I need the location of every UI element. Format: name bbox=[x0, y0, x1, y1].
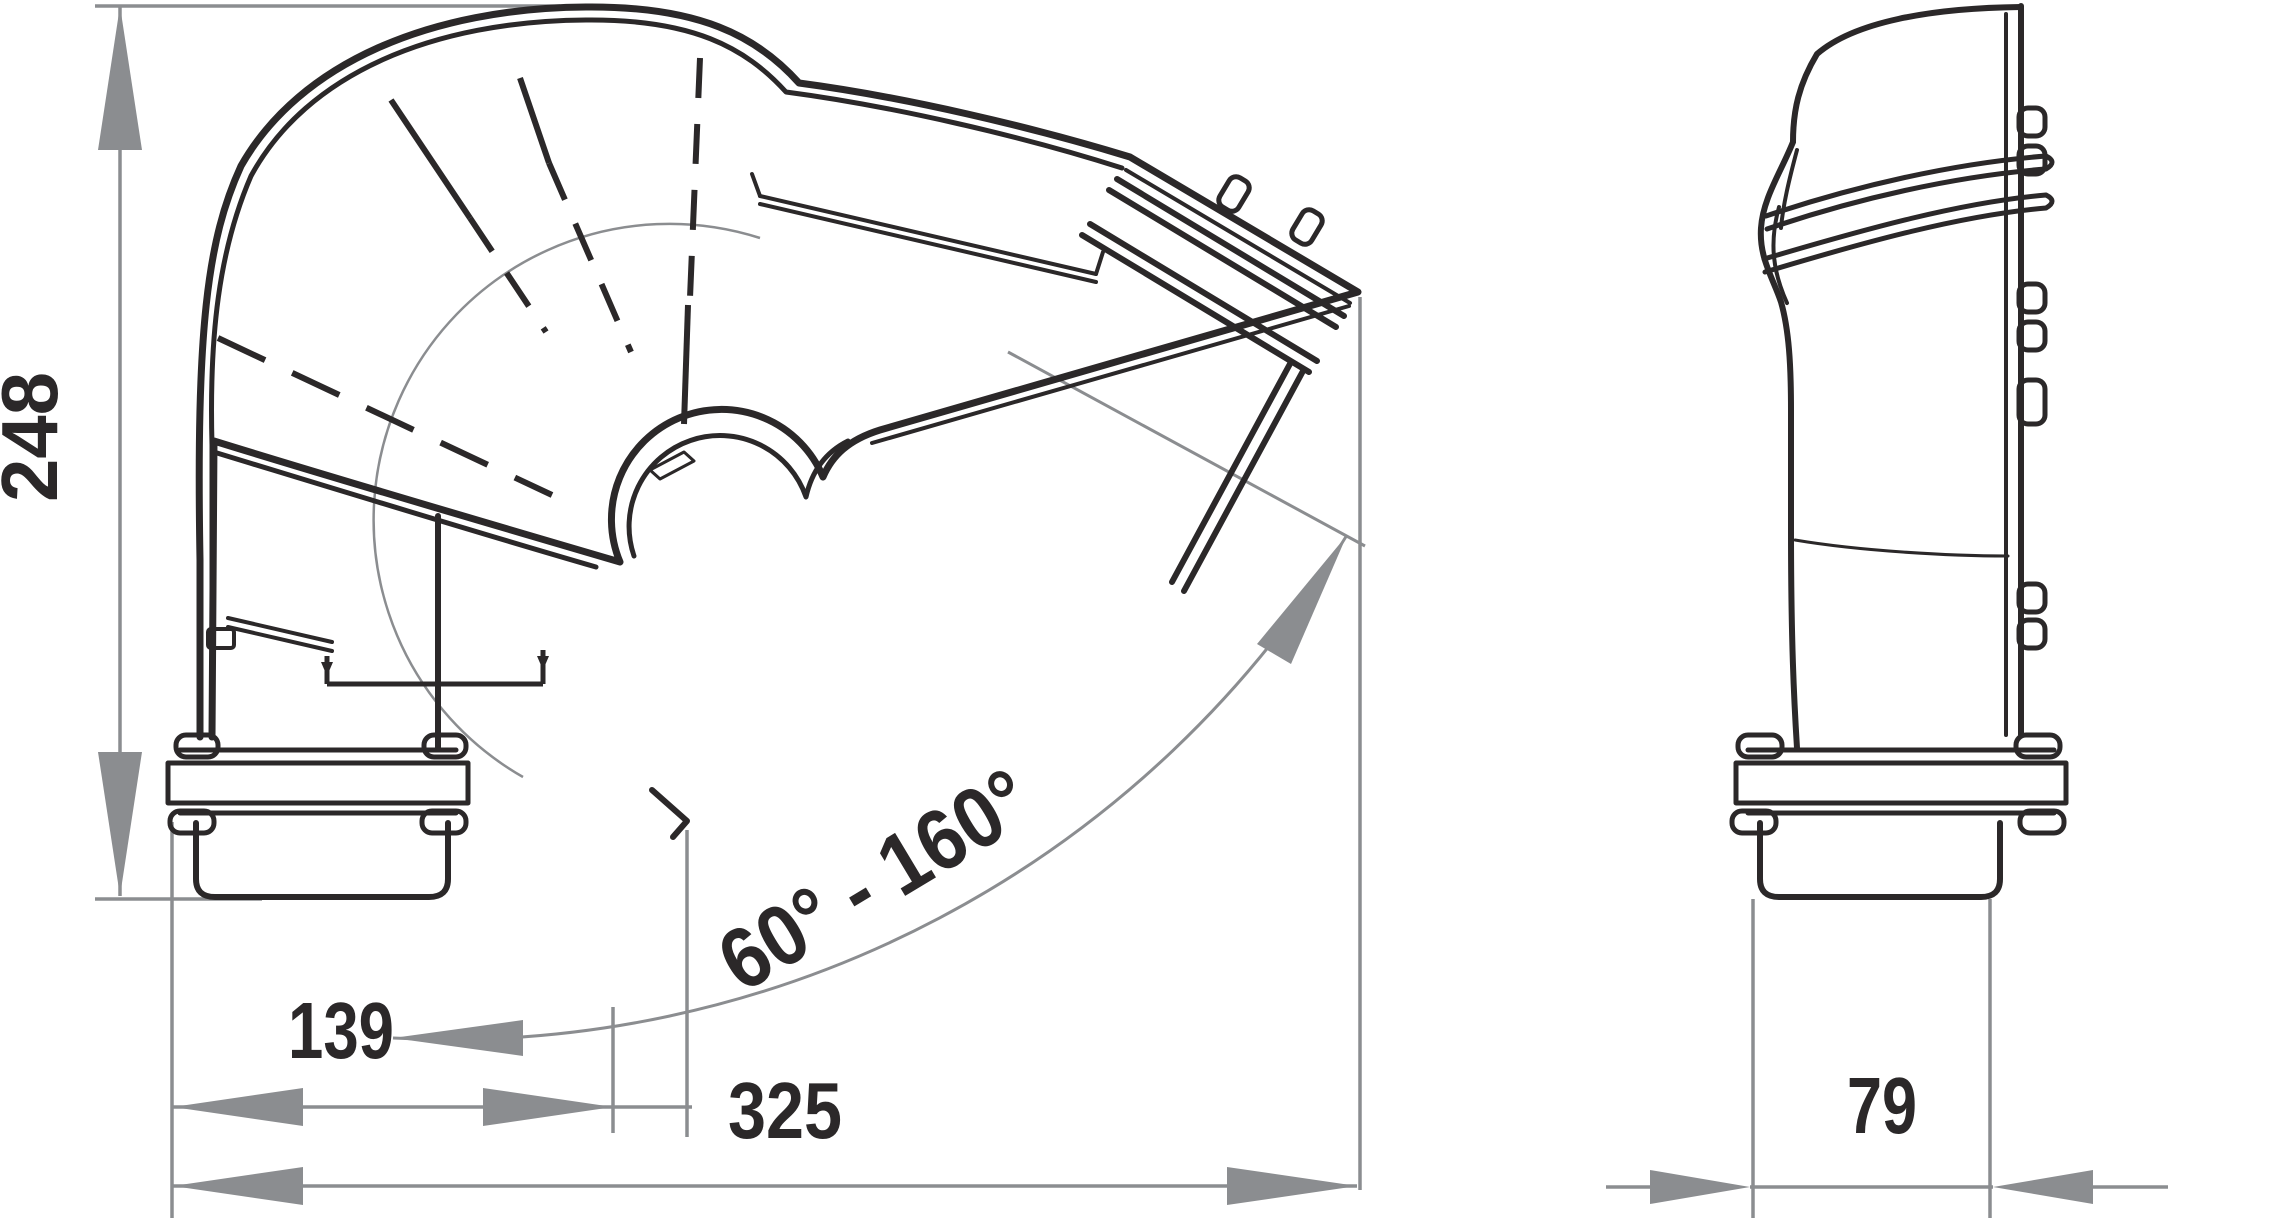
label-depth-79: 79 bbox=[1847, 1061, 1917, 1150]
seam-rail bbox=[208, 618, 332, 651]
side-top-edge bbox=[1793, 7, 2021, 142]
arrow-325-left bbox=[173, 1167, 303, 1205]
hub-clip bbox=[650, 452, 694, 479]
front-view bbox=[168, 7, 1358, 897]
elbow-inner-shell bbox=[211, 20, 1122, 737]
arrow-248-up bbox=[98, 6, 142, 150]
hub-construction-arc bbox=[374, 224, 760, 777]
side-flange bbox=[1732, 735, 2066, 897]
side-view bbox=[1732, 6, 2066, 897]
arrow-139-right bbox=[483, 1088, 613, 1126]
side-lip-top-right bbox=[2016, 735, 2060, 757]
front-lip-top-right bbox=[424, 735, 466, 757]
ray-c-dashed bbox=[690, 58, 700, 298]
ghost-corner-160 bbox=[652, 790, 687, 837]
ray-b-dashed bbox=[549, 163, 631, 352]
front-stub-box bbox=[196, 823, 448, 897]
side-lower-seam bbox=[1795, 540, 2008, 556]
side-seam-bands bbox=[1764, 156, 2052, 556]
front-flange-ring bbox=[168, 763, 468, 803]
rib-tab-2 bbox=[1289, 207, 1325, 247]
label-width-139: 139 bbox=[288, 986, 394, 1075]
body-handle-hook-right bbox=[537, 656, 549, 670]
duct-handle bbox=[752, 174, 1103, 282]
arrow-139-left bbox=[173, 1088, 303, 1126]
arrow-325-right bbox=[1227, 1167, 1357, 1205]
arrow-arc-bottom bbox=[393, 1020, 523, 1056]
duct-handle-hooks bbox=[752, 174, 1103, 274]
hub-inner-arc bbox=[629, 436, 848, 556]
rib-tab-1 bbox=[1216, 174, 1252, 214]
label-width-325: 325 bbox=[728, 1066, 842, 1155]
seam-rail-lines bbox=[228, 618, 332, 651]
ray-a-solid bbox=[391, 100, 470, 218]
arrow-248-down bbox=[98, 752, 142, 896]
side-flange-ring bbox=[1736, 763, 2066, 803]
taper-inner-edge bbox=[217, 453, 596, 567]
duct-handle-rail bbox=[760, 196, 1096, 282]
ray-a-dashed bbox=[470, 218, 546, 332]
ray-b-solid bbox=[520, 78, 549, 163]
ray-d-dashed bbox=[218, 338, 552, 495]
angle-arc bbox=[393, 535, 1347, 1039]
side-band-2 bbox=[1764, 195, 2052, 272]
body-handle-hook-left bbox=[321, 662, 333, 676]
arrow-79-left bbox=[1650, 1170, 1750, 1204]
front-flange bbox=[168, 735, 468, 897]
arrow-79-right bbox=[1993, 1170, 2093, 1204]
ray-c-solid bbox=[684, 305, 688, 424]
duct-inner-lines bbox=[872, 170, 1350, 443]
elbow-outer-contour bbox=[199, 7, 1358, 737]
label-angle-range: 60° - 160° bbox=[702, 750, 1047, 1010]
elbow-drawing-svg: 248 139 325 60° - 160° 79 bbox=[0, 0, 2290, 1218]
label-height-248: 248 bbox=[0, 372, 74, 502]
side-left-edge bbox=[1761, 142, 1797, 748]
drawing-sheet: 248 139 325 60° - 160° 79 bbox=[0, 0, 2290, 1218]
arrow-arc-top bbox=[1257, 535, 1347, 664]
side-lip-top-left bbox=[1738, 735, 1782, 757]
side-stub-box bbox=[1760, 823, 2000, 897]
